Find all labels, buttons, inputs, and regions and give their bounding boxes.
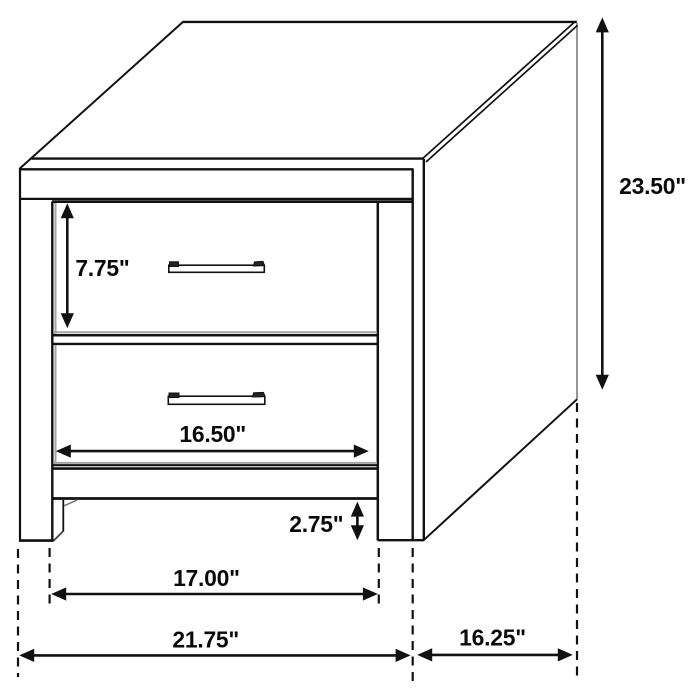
svg-text:16.50": 16.50" bbox=[179, 421, 246, 447]
svg-text:16.25": 16.25" bbox=[459, 625, 526, 651]
svg-text:7.75": 7.75" bbox=[75, 255, 129, 281]
svg-text:2.75": 2.75" bbox=[289, 511, 343, 537]
svg-text:21.75": 21.75" bbox=[172, 626, 239, 652]
svg-text:23.50": 23.50" bbox=[619, 173, 686, 199]
svg-text:17.00": 17.00" bbox=[173, 565, 240, 591]
